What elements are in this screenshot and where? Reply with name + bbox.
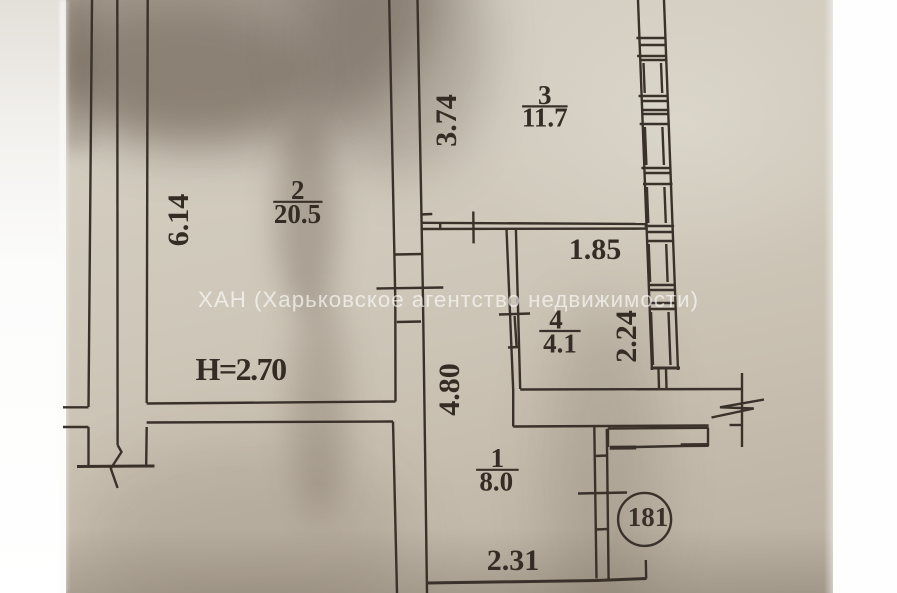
svg-text:181: 181 <box>628 502 669 532</box>
svg-text:6.14: 6.14 <box>162 194 195 247</box>
svg-text:1.85: 1.85 <box>569 233 622 266</box>
svg-text:H=2.70: H=2.70 <box>195 351 286 387</box>
svg-text:4.80: 4.80 <box>433 363 466 416</box>
svg-text:8.0: 8.0 <box>479 467 513 497</box>
svg-text:2.24: 2.24 <box>610 310 643 363</box>
svg-text:4.1: 4.1 <box>543 329 577 359</box>
svg-text:20.5: 20.5 <box>274 199 321 229</box>
svg-text:3.74: 3.74 <box>430 94 463 147</box>
svg-text:2.31: 2.31 <box>487 544 540 577</box>
